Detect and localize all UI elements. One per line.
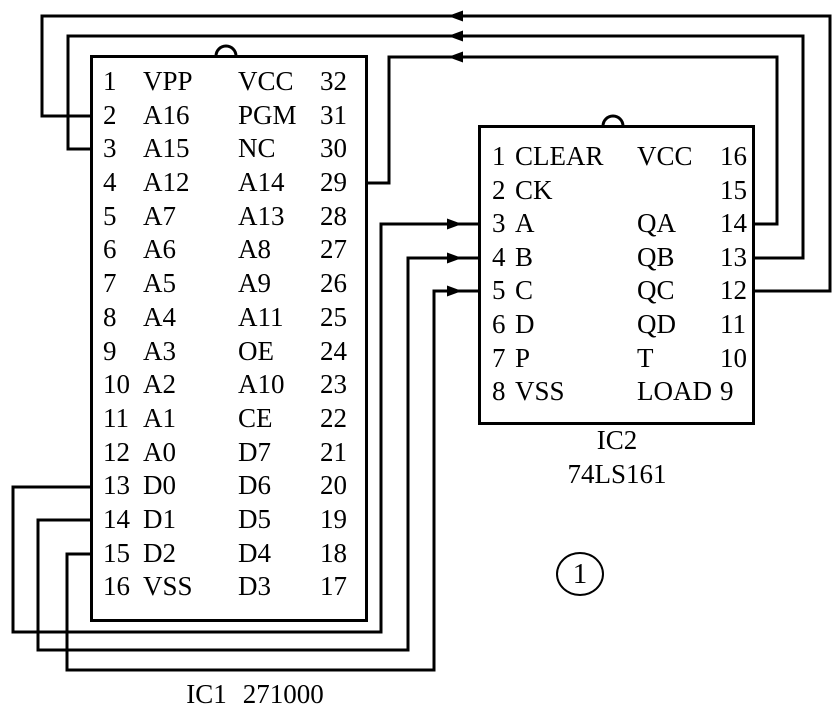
pin-name-left: A15 <box>143 132 238 166</box>
ic1-pin-row: 16VSSD317 <box>93 570 365 604</box>
pin-number-left: 7 <box>93 267 143 301</box>
pin-name-left: CLEAR <box>515 140 637 174</box>
pin-name-right: A9 <box>238 267 320 301</box>
pin-name-left: C <box>515 274 637 308</box>
pin-name-left: D <box>515 308 637 342</box>
ic1-pin-row: 6A6A827 <box>93 233 365 267</box>
pin-number-right: 30 <box>320 132 365 166</box>
pin-name-right: D7 <box>238 436 320 470</box>
pin-number-left: 4 <box>93 166 143 200</box>
pin-number-right: 27 <box>320 233 365 267</box>
pin-name-left: A2 <box>143 368 238 402</box>
pin-name-right: D6 <box>238 469 320 503</box>
ic1-pin-row: 14D1D519 <box>93 503 365 537</box>
pin-name-left: A6 <box>143 233 238 267</box>
ic2-pin-row: 6DQD11 <box>481 308 752 342</box>
chip-ic1: 1VPPVCC32 2A16PGM31 3A15NC30 4A12A1429 5… <box>90 55 368 622</box>
pin-number-left: 5 <box>93 200 143 234</box>
pin-number-left: 14 <box>93 503 143 537</box>
ic2-pin-row: 3AQA14 <box>481 207 752 241</box>
ic1-pin-row: 8A4A1125 <box>93 301 365 335</box>
arrowhead-left-icon <box>448 31 463 42</box>
ic1-caption: IC1271000 <box>140 679 370 710</box>
pin-number-right: 21 <box>320 436 365 470</box>
pin-name-right: QA <box>637 207 720 241</box>
pin-name-left: A16 <box>143 99 238 133</box>
ic1-pin-row: 7A5A926 <box>93 267 365 301</box>
pin-number-right: 13 <box>720 241 752 275</box>
pin-name-right: CE <box>238 402 320 436</box>
pin-number-right: 15 <box>720 174 752 208</box>
ic2-pin-row: 4BQB13 <box>481 241 752 275</box>
arrowhead-left-icon <box>448 11 463 22</box>
schematic-canvas: 1VPPVCC32 2A16PGM31 3A15NC30 4A12A1429 5… <box>0 0 838 721</box>
pin-name-right: NC <box>238 132 320 166</box>
pin-number-left: 3 <box>93 132 143 166</box>
pin-name-left: VSS <box>143 570 238 604</box>
pin-number-left: 8 <box>481 375 515 409</box>
pin-name-left: A1 <box>143 402 238 436</box>
pin-number-left: 15 <box>93 537 143 571</box>
pin-name-left: D2 <box>143 537 238 571</box>
pin-name-left: A0 <box>143 436 238 470</box>
pin-number-right: 9 <box>720 375 752 409</box>
pin-name-left: CK <box>515 174 637 208</box>
arrowhead-right-icon <box>447 286 462 297</box>
ic2-pin-row: 5CQC12 <box>481 274 752 308</box>
pin-number-left: 6 <box>481 308 515 342</box>
pin-name-right: A13 <box>238 200 320 234</box>
pin-name-right: OE <box>238 335 320 369</box>
figure-number: 1 <box>573 558 588 590</box>
ic1-pin-row: 12A0D721 <box>93 436 365 470</box>
pin-number-left: 12 <box>93 436 143 470</box>
figure-number-badge: 1 <box>556 552 604 596</box>
pin-number-left: 1 <box>93 65 143 99</box>
ic2-caption: IC2 74LS161 <box>535 423 699 491</box>
ic2-caption-part: 74LS161 <box>535 457 699 491</box>
pin-name-right: D5 <box>238 503 320 537</box>
pin-name-left: A4 <box>143 301 238 335</box>
pin-number-right: 12 <box>720 274 752 308</box>
pin-name-left: A12 <box>143 166 238 200</box>
pin-number-right: 31 <box>320 99 365 133</box>
pin-number-right: 25 <box>320 301 365 335</box>
pin-name-right: LOAD <box>637 375 720 409</box>
pin-name-right: A14 <box>238 166 320 200</box>
pin-name-right: VCC <box>238 65 320 99</box>
pin-name-left: VPP <box>143 65 238 99</box>
pin-number-left: 4 <box>481 241 515 275</box>
pin-name-right: PGM <box>238 99 320 133</box>
pin-number-right: 14 <box>720 207 752 241</box>
ic2-pin-row: 2CK15 <box>481 174 752 208</box>
ic1-caption-name: IC1 <box>186 679 227 709</box>
pin-name-right: A8 <box>238 233 320 267</box>
pin-name-left: B <box>515 241 637 275</box>
ic1-pin-row: 5A7A1328 <box>93 200 365 234</box>
pin-number-left: 2 <box>93 99 143 133</box>
ic2-pin-row: 1CLEARVCC16 <box>481 140 752 174</box>
pin-name-right <box>637 174 720 208</box>
pin-name-left: A3 <box>143 335 238 369</box>
pin-number-left: 8 <box>93 301 143 335</box>
pin-number-right: 18 <box>320 537 365 571</box>
pin-number-left: 16 <box>93 570 143 604</box>
pin-name-right: QB <box>637 241 720 275</box>
pin-number-left: 3 <box>481 207 515 241</box>
pin-number-left: 2 <box>481 174 515 208</box>
pin-name-left: A7 <box>143 200 238 234</box>
arrowhead-left-icon <box>448 52 463 63</box>
ic1-pin-row: 9A3OE24 <box>93 335 365 369</box>
ic1-pin-row: 2A16PGM31 <box>93 99 365 133</box>
pin-name-left: VSS <box>515 375 637 409</box>
pin-number-right: 11 <box>720 308 752 342</box>
ic2-pin-row: 8VSSLOAD9 <box>481 375 752 409</box>
arrowhead-right-icon <box>447 219 462 230</box>
pin-name-left: D0 <box>143 469 238 503</box>
pin-number-right: 26 <box>320 267 365 301</box>
pin-number-left: 10 <box>93 368 143 402</box>
pin-number-left: 6 <box>93 233 143 267</box>
pin-name-right: D4 <box>238 537 320 571</box>
chip-ic2: 1CLEARVCC16 2CK15 3AQA14 4BQB13 5CQC12 6… <box>478 125 755 425</box>
pin-name-left: A5 <box>143 267 238 301</box>
pin-number-left: 13 <box>93 469 143 503</box>
pin-number-left: 5 <box>481 274 515 308</box>
pin-name-left: A <box>515 207 637 241</box>
pin-number-right: 17 <box>320 570 365 604</box>
ic1-pin-row: 3A15NC30 <box>93 132 365 166</box>
pin-name-right: D3 <box>238 570 320 604</box>
pin-name-right: VCC <box>637 140 720 174</box>
pin-name-right: T <box>637 342 720 376</box>
pin-number-right: 16 <box>720 140 752 174</box>
pin-number-left: 11 <box>93 402 143 436</box>
pin-number-right: 29 <box>320 166 365 200</box>
pin-number-right: 22 <box>320 402 365 436</box>
pin-number-right: 10 <box>720 342 752 376</box>
pin-number-right: 19 <box>320 503 365 537</box>
arrowhead-right-icon <box>447 253 462 264</box>
ic1-pin-row: 1VPPVCC32 <box>93 65 365 99</box>
ic1-caption-part: 271000 <box>243 679 324 709</box>
ic1-pin-row: 11A1CE22 <box>93 402 365 436</box>
pin-number-left: 7 <box>481 342 515 376</box>
ic2-caption-name: IC2 <box>535 423 699 457</box>
pin-name-left: P <box>515 342 637 376</box>
pin-name-right: QC <box>637 274 720 308</box>
pin-name-left: D1 <box>143 503 238 537</box>
ic1-pin-row: 4A12A1429 <box>93 166 365 200</box>
pin-name-right: QD <box>637 308 720 342</box>
pin-name-right: A10 <box>238 368 320 402</box>
ic1-pin-row: 15D2D418 <box>93 537 365 571</box>
pin-number-right: 20 <box>320 469 365 503</box>
pin-number-right: 28 <box>320 200 365 234</box>
pin-number-right: 23 <box>320 368 365 402</box>
ic1-pin-row: 13D0D620 <box>93 469 365 503</box>
pin-number-right: 32 <box>320 65 365 99</box>
pin-number-left: 9 <box>93 335 143 369</box>
ic2-pin-row: 7PT10 <box>481 342 752 376</box>
ic1-pin-row: 10A2A1023 <box>93 368 365 402</box>
pin-number-right: 24 <box>320 335 365 369</box>
pin-name-right: A11 <box>238 301 320 335</box>
pin-number-left: 1 <box>481 140 515 174</box>
